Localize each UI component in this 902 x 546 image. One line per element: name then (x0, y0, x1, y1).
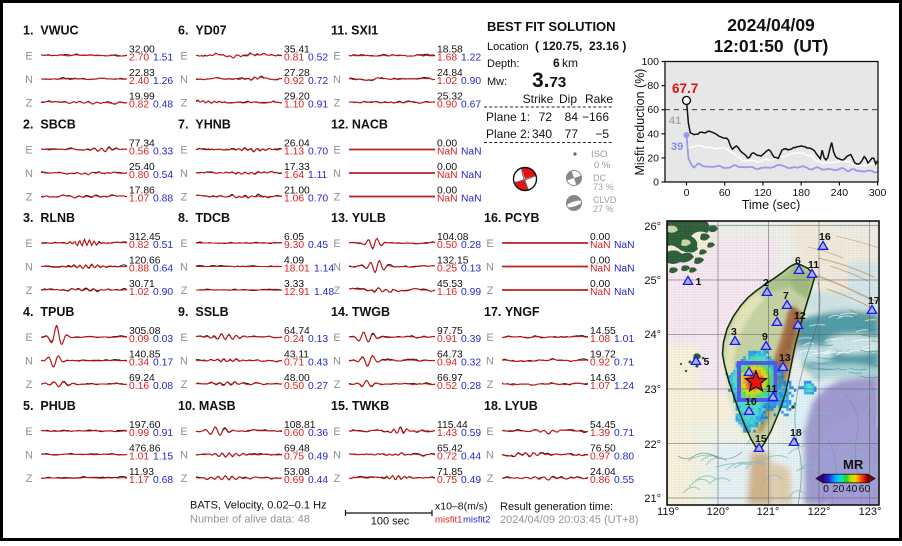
svg-text:60: 60 (647, 104, 659, 116)
svg-text:0.52: 0.52 (308, 53, 328, 64)
svg-text:39: 39 (671, 141, 683, 153)
svg-text:0.51: 0.51 (153, 240, 173, 251)
svg-text:340: 340 (532, 127, 552, 141)
svg-text:Mw:: Mw: (487, 76, 507, 88)
svg-text:9. SSLB: 9. SSLB (178, 305, 229, 319)
svg-text:20: 20 (833, 483, 845, 495)
svg-text:13: 13 (779, 352, 791, 364)
svg-text:1.22: 1.22 (461, 53, 481, 64)
svg-text:0.03: 0.03 (153, 334, 173, 345)
svg-text:0.33: 0.33 (153, 147, 173, 158)
svg-text:73 %: 73 % (593, 182, 614, 192)
svg-text:E: E (180, 426, 187, 438)
svg-text:84: 84 (565, 110, 579, 124)
svg-text:2.70: 2.70 (129, 53, 149, 64)
svg-text:Z: Z (181, 285, 188, 297)
svg-text:1.02: 1.02 (437, 76, 457, 87)
svg-text:18.01: 18.01 (284, 264, 310, 275)
svg-text:misfit2: misfit2 (463, 515, 490, 526)
svg-text:Z: Z (26, 97, 33, 109)
svg-text:Time (sec): Time (sec) (742, 198, 801, 212)
svg-text:0.86: 0.86 (590, 475, 610, 486)
svg-text:13. YULB: 13. YULB (331, 211, 386, 225)
svg-text:Dip: Dip (559, 92, 577, 106)
svg-text:0.24: 0.24 (284, 334, 304, 345)
svg-text:17: 17 (868, 295, 880, 307)
svg-text:40: 40 (647, 128, 659, 140)
svg-text:Z: Z (181, 473, 188, 485)
svg-text:2024/04/09: 2024/04/09 (727, 15, 815, 35)
svg-text:NaN: NaN (614, 240, 635, 251)
svg-text:N: N (333, 449, 341, 461)
svg-text:E: E (333, 238, 340, 250)
svg-text:1.15: 1.15 (153, 452, 173, 463)
svg-text:6: 6 (795, 255, 801, 267)
svg-text:NaN: NaN (461, 147, 482, 158)
svg-text:E: E (25, 50, 32, 62)
svg-text:3: 3 (731, 326, 737, 338)
svg-text:240: 240 (831, 187, 849, 199)
svg-text:0.99: 0.99 (461, 287, 481, 298)
svg-text:26°: 26° (644, 221, 661, 233)
svg-text:0.71: 0.71 (284, 358, 304, 369)
svg-text:2024/04/09 20:03:45 (UT+8): 2024/04/09 20:03:45 (UT+8) (500, 514, 639, 526)
svg-text:0.09: 0.09 (129, 334, 149, 345)
svg-text:15. TWKB: 15. TWKB (331, 399, 389, 413)
svg-text:0.16: 0.16 (129, 381, 149, 392)
svg-text:Misfit reduction (%): Misfit reduction (%) (633, 69, 647, 176)
svg-text:0.82: 0.82 (129, 240, 149, 251)
svg-text:0.48: 0.48 (153, 100, 173, 111)
svg-text:0.90: 0.90 (461, 76, 481, 87)
svg-text:100: 100 (641, 56, 659, 68)
svg-text:N: N (333, 261, 341, 273)
svg-text:24°: 24° (644, 329, 661, 341)
svg-text:1. VWUC: 1. VWUC (23, 24, 79, 38)
svg-text:6: 6 (553, 56, 560, 70)
svg-text:Z: Z (181, 191, 188, 203)
svg-text:N: N (180, 168, 188, 180)
svg-text:0.97: 0.97 (590, 452, 610, 463)
svg-text:9.30: 9.30 (284, 240, 304, 251)
svg-text:20: 20 (647, 152, 659, 164)
svg-text:NaN: NaN (461, 194, 482, 205)
svg-text:NaN: NaN (461, 170, 482, 181)
svg-text:0.50: 0.50 (437, 240, 457, 251)
svg-text:Z: Z (181, 379, 188, 391)
svg-text:1.51: 1.51 (153, 53, 173, 64)
svg-text:E: E (486, 238, 493, 250)
svg-text:NaN: NaN (590, 287, 611, 298)
svg-text:5. PHUB: 5. PHUB (23, 399, 76, 413)
svg-text:1.06: 1.06 (284, 194, 304, 205)
svg-text:23°: 23° (644, 384, 661, 396)
svg-text:E: E (180, 332, 187, 344)
svg-text:NaN: NaN (614, 264, 635, 275)
svg-text:120°: 120° (707, 506, 730, 518)
svg-text:4. TPUB: 4. TPUB (23, 305, 74, 319)
svg-text:Number of alive data: 48: Number of alive data: 48 (190, 514, 310, 526)
svg-text:9: 9 (762, 331, 768, 343)
svg-text:0.80: 0.80 (614, 452, 634, 463)
svg-text:N: N (486, 355, 494, 367)
svg-text:0.36: 0.36 (308, 428, 328, 439)
svg-text:Z: Z (26, 473, 33, 485)
svg-text:0.52: 0.52 (437, 381, 457, 392)
svg-text:1.43: 1.43 (437, 428, 457, 439)
svg-text:Z: Z (26, 285, 33, 297)
svg-text:E: E (25, 332, 32, 344)
svg-text:60: 60 (719, 187, 731, 199)
svg-text:25°: 25° (644, 275, 661, 287)
svg-text:0.82: 0.82 (129, 100, 149, 111)
svg-text:N: N (180, 355, 188, 367)
svg-text:Z: Z (487, 473, 494, 485)
svg-text:E: E (333, 332, 340, 344)
svg-text:0.44: 0.44 (308, 475, 328, 486)
svg-text:0.49: 0.49 (461, 475, 481, 486)
svg-text:E: E (486, 332, 493, 344)
svg-text:Z: Z (334, 285, 341, 297)
svg-text:12. NACB: 12. NACB (331, 118, 388, 132)
svg-text:1.07: 1.07 (129, 194, 149, 205)
svg-text:N: N (25, 74, 33, 86)
svg-text:60: 60 (859, 483, 871, 495)
svg-text:1.48: 1.48 (314, 287, 334, 298)
svg-text:N: N (180, 449, 188, 461)
svg-text:67.7: 67.7 (672, 81, 698, 96)
svg-text:0.75: 0.75 (284, 452, 304, 463)
svg-text:11. SXI1: 11. SXI1 (331, 24, 378, 38)
svg-text:3. RLNB: 3. RLNB (23, 211, 75, 225)
svg-text:0.50: 0.50 (284, 381, 304, 392)
svg-text:1.02: 1.02 (129, 287, 149, 298)
svg-text:0.71: 0.71 (614, 428, 634, 439)
svg-text:0.91: 0.91 (308, 100, 328, 111)
svg-text:0.91: 0.91 (153, 428, 173, 439)
svg-text:1.26: 1.26 (153, 76, 173, 87)
svg-text:1.14: 1.14 (314, 264, 334, 275)
svg-text:1.13: 1.13 (284, 147, 304, 158)
svg-text:BEST FIT SOLUTION: BEST FIT SOLUTION (487, 19, 616, 34)
svg-text:Z: Z (26, 379, 33, 391)
svg-text:Z: Z (334, 379, 341, 391)
svg-text:1.64: 1.64 (284, 170, 304, 181)
svg-text:1.10: 1.10 (284, 100, 304, 111)
svg-text:E: E (333, 144, 340, 156)
svg-text:x10–8(m/s): x10–8(m/s) (435, 501, 488, 513)
svg-text:1.01: 1.01 (614, 334, 634, 345)
svg-text:0.88: 0.88 (129, 264, 149, 275)
svg-text:N: N (180, 74, 188, 86)
svg-text:N: N (25, 449, 33, 461)
svg-text:41: 41 (669, 115, 681, 127)
svg-text:Z: Z (26, 191, 33, 203)
svg-text:−166: −166 (582, 110, 609, 124)
svg-text:BATS, Velocity, 0.02–0.1 Hz: BATS, Velocity, 0.02–0.1 Hz (190, 500, 327, 512)
svg-text:10. MASB: 10. MASB (178, 399, 236, 413)
svg-text:E: E (180, 144, 187, 156)
svg-text:0.54: 0.54 (153, 170, 173, 181)
svg-text:Result generation time:: Result generation time: (500, 501, 613, 513)
svg-text:11: 11 (766, 383, 777, 395)
svg-text:10: 10 (745, 396, 757, 408)
svg-text:0.81: 0.81 (284, 53, 304, 64)
svg-text:Z: Z (334, 97, 341, 109)
svg-text:Z: Z (487, 285, 494, 297)
svg-text:8. TDCB: 8. TDCB (178, 211, 230, 225)
svg-text:0.60: 0.60 (284, 428, 304, 439)
svg-text:14. TWGB: 14. TWGB (331, 305, 390, 319)
svg-text:12:01:50 (UT): 12:01:50 (UT) (714, 36, 829, 56)
svg-text:0.72: 0.72 (437, 452, 457, 463)
svg-text:NaN: NaN (590, 264, 611, 275)
svg-text:E: E (333, 50, 340, 62)
svg-text:0: 0 (684, 187, 690, 199)
svg-text:0.08: 0.08 (153, 381, 173, 392)
svg-text:NaN: NaN (614, 287, 635, 298)
svg-text:N: N (486, 261, 494, 273)
svg-text:6. YD07: 6. YD07 (178, 24, 227, 38)
svg-text:Z: Z (487, 379, 494, 391)
svg-text:0.25: 0.25 (437, 264, 457, 275)
svg-text:0.28: 0.28 (461, 240, 481, 251)
svg-text:0.68: 0.68 (153, 475, 173, 486)
svg-text:0.80: 0.80 (129, 170, 149, 181)
svg-text:123°: 123° (859, 506, 882, 518)
svg-text:ISO: ISO (591, 149, 607, 160)
svg-text:18. LYUB: 18. LYUB (484, 399, 538, 413)
svg-text:2. SBCB: 2. SBCB (23, 118, 76, 132)
svg-text:0.88: 0.88 (153, 194, 173, 205)
svg-text:0.32: 0.32 (461, 358, 481, 369)
svg-text:0.49: 0.49 (308, 452, 328, 463)
svg-text:16. PCYB: 16. PCYB (484, 211, 540, 225)
svg-text:119°: 119° (657, 506, 679, 518)
svg-text:0.69: 0.69 (284, 475, 304, 486)
svg-text:0.72: 0.72 (308, 76, 328, 87)
svg-text:0.70: 0.70 (308, 147, 328, 158)
svg-text:Plane 2:: Plane 2: (486, 127, 530, 141)
svg-text:15: 15 (755, 433, 767, 445)
svg-text:N: N (333, 168, 341, 180)
svg-text:1: 1 (696, 276, 702, 288)
svg-text:0: 0 (823, 483, 829, 495)
svg-text:0.92: 0.92 (590, 358, 610, 369)
svg-text:E: E (333, 426, 340, 438)
svg-text:0.44: 0.44 (461, 452, 481, 463)
svg-text:300: 300 (869, 187, 887, 199)
svg-text:N: N (25, 168, 33, 180)
svg-text:1.08: 1.08 (590, 334, 610, 345)
svg-text:27 %: 27 % (593, 204, 614, 214)
svg-text:1.11: 1.11 (308, 170, 328, 181)
svg-text:22°: 22° (644, 439, 661, 451)
svg-text:−5: −5 (595, 127, 609, 141)
svg-text:0.75: 0.75 (437, 475, 457, 486)
svg-text:80: 80 (647, 80, 659, 92)
svg-text:40: 40 (846, 483, 858, 495)
svg-text:12: 12 (794, 310, 806, 322)
svg-text:Z: Z (334, 191, 341, 203)
svg-text:122°: 122° (808, 506, 831, 518)
svg-text:0.17: 0.17 (153, 358, 173, 369)
svg-text:E: E (180, 50, 187, 62)
svg-text:0.13: 0.13 (461, 264, 481, 275)
svg-text:12.91: 12.91 (284, 287, 310, 298)
svg-text:N: N (25, 355, 33, 367)
svg-text:0 %: 0 % (594, 160, 611, 171)
svg-text:0.43: 0.43 (308, 358, 328, 369)
svg-text:0.70: 0.70 (308, 194, 328, 205)
svg-text:Depth:: Depth: (487, 58, 519, 70)
svg-text:Z: Z (181, 97, 188, 109)
svg-text:121°: 121° (757, 506, 780, 518)
svg-text:8: 8 (773, 307, 779, 319)
svg-text:misfit1: misfit1 (435, 515, 462, 526)
svg-text:0.90: 0.90 (437, 100, 457, 111)
svg-text:0.91: 0.91 (437, 334, 457, 345)
svg-text:21°: 21° (644, 493, 661, 505)
svg-text:16: 16 (819, 231, 831, 243)
svg-text:0.56: 0.56 (129, 147, 149, 158)
svg-text:E: E (180, 238, 187, 250)
svg-text:NaN: NaN (590, 240, 611, 251)
svg-text:NaN: NaN (437, 170, 458, 181)
svg-text:N: N (486, 449, 494, 461)
svg-text:km: km (562, 56, 578, 70)
svg-text:18: 18 (790, 427, 802, 439)
svg-text:0.92: 0.92 (284, 76, 304, 87)
svg-text:NaN: NaN (437, 194, 458, 205)
svg-text:Plane 1:: Plane 1: (486, 110, 530, 124)
svg-text:1.16: 1.16 (437, 287, 457, 298)
svg-text:2.40: 2.40 (129, 76, 149, 87)
svg-text:0.39: 0.39 (461, 334, 481, 345)
svg-text:E: E (486, 426, 493, 438)
svg-text:1.39: 1.39 (590, 428, 610, 439)
svg-text:0.67: 0.67 (461, 100, 481, 111)
svg-text:17. YNGF: 17. YNGF (484, 305, 540, 319)
svg-text:N: N (333, 74, 341, 86)
svg-text:MR: MR (843, 457, 864, 472)
svg-text:0.13: 0.13 (308, 334, 328, 345)
svg-text:1.17: 1.17 (129, 475, 149, 486)
svg-text:E: E (25, 238, 32, 250)
svg-text:1.68: 1.68 (437, 53, 457, 64)
svg-text:0.55: 0.55 (614, 475, 634, 486)
svg-text:0.59: 0.59 (461, 428, 481, 439)
svg-text:77: 77 (565, 127, 579, 141)
svg-text:Strike: Strike (523, 92, 554, 106)
svg-text:0.27: 0.27 (308, 381, 328, 392)
svg-text:1.24: 1.24 (614, 381, 634, 392)
svg-text:0.34: 0.34 (129, 358, 149, 369)
svg-text:7. YHNB: 7. YHNB (178, 118, 231, 132)
svg-text:2: 2 (763, 277, 769, 289)
svg-text:0.64: 0.64 (153, 264, 173, 275)
svg-text:1.01: 1.01 (129, 452, 149, 463)
svg-text:NaN: NaN (437, 147, 458, 158)
svg-text:0: 0 (653, 177, 659, 189)
svg-text:( 120.75, 23.16 ): ( 120.75, 23.16 ) (535, 39, 626, 53)
svg-text:0.28: 0.28 (461, 381, 481, 392)
svg-text:Rake: Rake (585, 92, 613, 106)
svg-text:E: E (25, 426, 32, 438)
svg-text:0.71: 0.71 (614, 358, 634, 369)
svg-text:0.90: 0.90 (153, 287, 173, 298)
svg-text:N: N (180, 261, 188, 273)
svg-text:0.99: 0.99 (129, 428, 149, 439)
svg-text:N: N (25, 261, 33, 273)
svg-text:E: E (25, 144, 32, 156)
svg-text:Z: Z (334, 473, 341, 485)
svg-text:7: 7 (783, 290, 789, 302)
svg-text:1.07: 1.07 (590, 381, 610, 392)
svg-text:0.94: 0.94 (437, 358, 457, 369)
svg-text:72: 72 (539, 110, 553, 124)
svg-text:0.45: 0.45 (308, 240, 328, 251)
svg-text:N: N (333, 355, 341, 367)
svg-text:11: 11 (808, 259, 819, 271)
svg-text:5: 5 (704, 356, 710, 368)
svg-text:Location: Location (487, 41, 529, 53)
svg-text:100 sec: 100 sec (371, 516, 410, 528)
